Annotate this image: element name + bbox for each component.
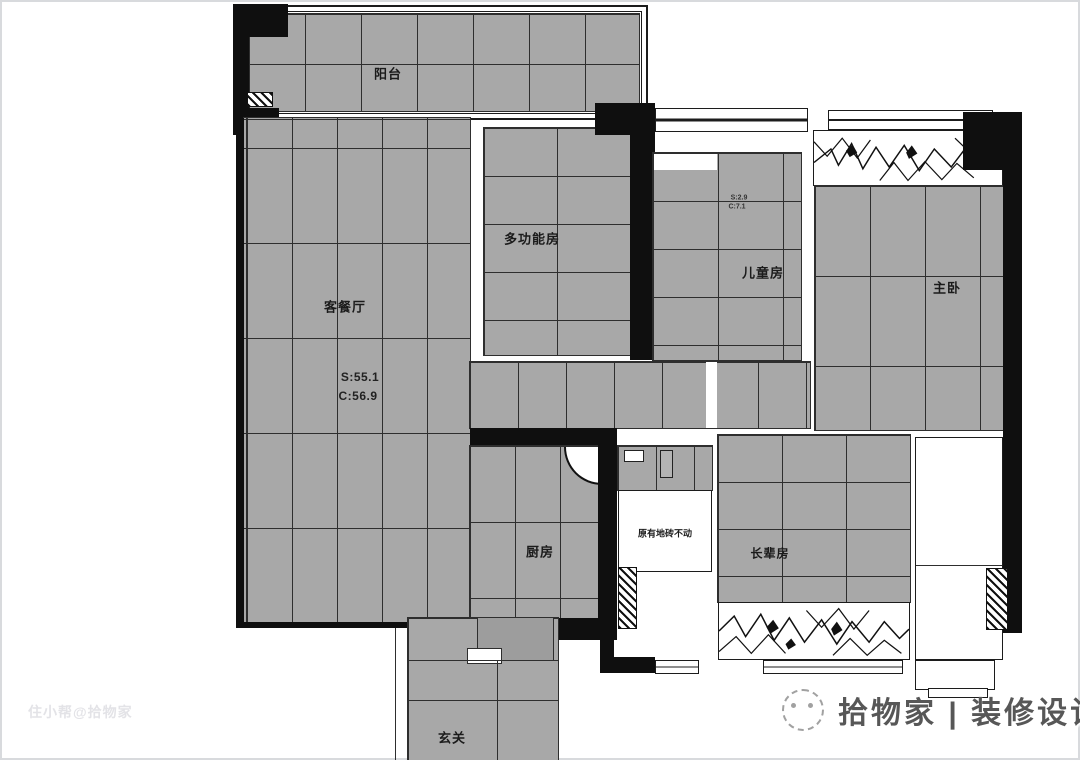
balcony-label: 阳台 bbox=[374, 64, 402, 83]
marble-texture bbox=[718, 602, 910, 660]
kids-notch bbox=[654, 154, 717, 170]
elders-window bbox=[763, 660, 903, 674]
room-balcony bbox=[249, 14, 639, 111]
wall-line bbox=[408, 660, 558, 661]
hatch-wall bbox=[986, 568, 1008, 630]
living-area-c: C:56.9 bbox=[338, 389, 377, 403]
living-area-s: S:55.1 bbox=[341, 370, 379, 384]
wall-line bbox=[395, 628, 396, 760]
master-label: 主卧 bbox=[933, 278, 961, 297]
kids-area-s: S:2.9 bbox=[731, 195, 748, 202]
kids-area-c: C:7.1 bbox=[728, 204, 745, 211]
corridor-door-gap bbox=[706, 362, 717, 428]
foyer-label: 玄关 bbox=[438, 728, 466, 747]
bath-fixture bbox=[660, 450, 673, 478]
user-watermark: 住小帮@拾物家 bbox=[28, 702, 133, 722]
room-elders bbox=[718, 435, 910, 602]
kitchen-label: 厨房 bbox=[526, 542, 554, 561]
brand-logo-icon bbox=[782, 689, 824, 731]
bath-window bbox=[655, 660, 699, 674]
brand-text: 拾物家 | 装修设计 bbox=[838, 688, 1080, 732]
wall-segment bbox=[1003, 112, 1022, 633]
wall-segment bbox=[630, 103, 655, 360]
bath-fixture bbox=[624, 450, 644, 462]
wall-line bbox=[497, 660, 498, 760]
wall-segment bbox=[598, 428, 617, 630]
hatch-wall bbox=[618, 567, 637, 629]
bath2-divider bbox=[916, 565, 1002, 566]
kids-window bbox=[655, 108, 808, 132]
wall-segment bbox=[470, 428, 612, 446]
multi-function-label: 多功能房 bbox=[504, 229, 560, 248]
hatch-wall bbox=[247, 92, 273, 107]
room-master bbox=[815, 186, 1003, 430]
brand-watermark: 拾物家 | 装修设计 bbox=[782, 688, 1080, 732]
bath-note: 原有地砖不动 bbox=[638, 527, 692, 540]
corridor bbox=[470, 362, 810, 428]
bath2-lower bbox=[915, 660, 995, 690]
kids-label: 儿童房 bbox=[742, 263, 784, 282]
room-kids bbox=[653, 153, 801, 360]
wall-line bbox=[408, 700, 558, 701]
elders-label: 长辈房 bbox=[750, 545, 789, 562]
living-dining-label: 客餐厅 bbox=[324, 297, 366, 316]
wall-segment bbox=[600, 657, 655, 673]
wall-segment bbox=[236, 118, 244, 628]
floorplan-canvas: 阳台 客餐厅 S:55.1 C:56.9 多功能房 S:2.9 C:7.1 儿童… bbox=[0, 0, 1080, 760]
